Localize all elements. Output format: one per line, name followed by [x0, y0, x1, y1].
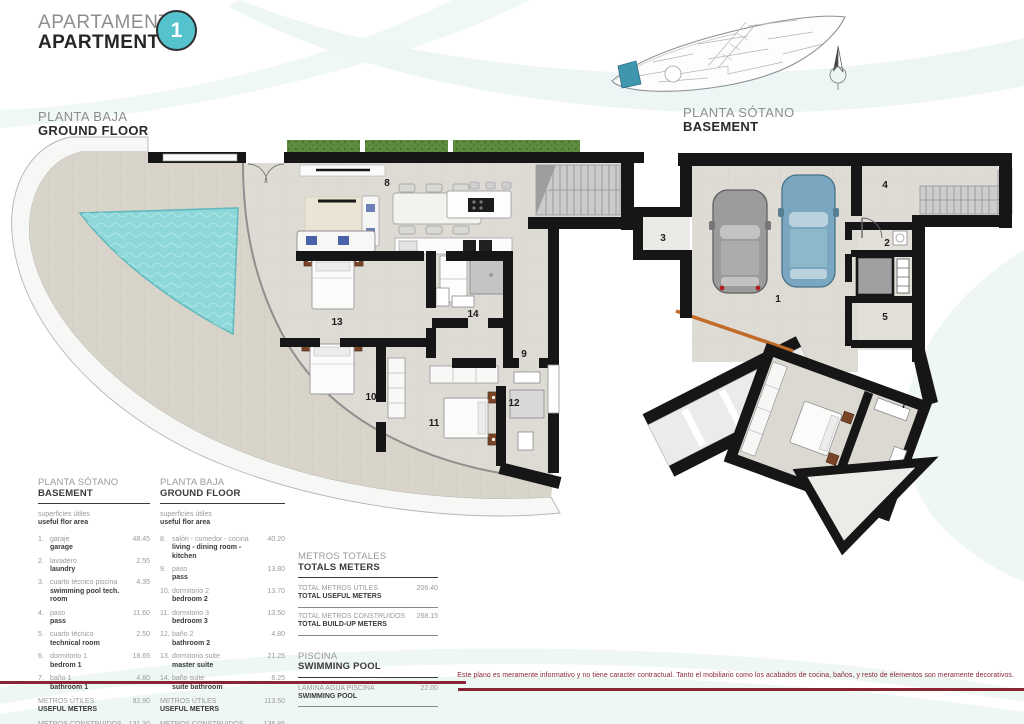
washbasin: [514, 372, 540, 383]
legend-totals: METROS ÚTILES USEFUL METERS 113.50 METRO…: [160, 698, 285, 724]
pool-row: LÁMINA AGUA PISCINA SWIMMING POOL 22.00: [298, 685, 438, 708]
wardrobe: [430, 366, 498, 383]
legend-item-label: baño 1 bathroom 1: [50, 675, 136, 692]
pool-header: PISCINA SWIMMING POOL: [298, 652, 438, 678]
legend-item-label: baño suite suite bathroom: [172, 675, 271, 692]
room-label: 11: [429, 418, 440, 429]
room-label: 13: [331, 317, 343, 328]
totals-header: METROS TOTALES TOTALS METERS: [298, 552, 438, 578]
legend-total-row: METROS ÚTILES USEFUL METERS 92.90: [38, 698, 150, 715]
legend-item-label: garaje garage: [50, 536, 132, 553]
pool-rows: LÁMINA AGUA PISCINA SWIMMING POOL 22.00: [298, 685, 438, 708]
legend-item-label: salón - comedor - cocina living - dining…: [172, 536, 267, 561]
legend-item-label: lavadero laundry: [50, 558, 136, 575]
room-label: 6: [850, 376, 856, 387]
legend-item-label: cuarto técnico piscina swimming pool tec…: [50, 579, 136, 604]
cooktop: [468, 198, 494, 212]
site-plan-key: [598, 4, 858, 99]
legend-item: 8. salón - comedor - cocina living - din…: [160, 536, 285, 561]
legend-item-number: 13.: [160, 653, 172, 670]
legend-item-label: dormitorio 3 bedroom 3: [172, 610, 267, 627]
room-label: 4: [882, 180, 888, 191]
legend-totals: METROS ÚTILES USEFUL METERS 92.90 METROS…: [38, 698, 150, 724]
legend-item: 9. paso pass 13.80: [160, 566, 285, 583]
basement-plan: 1 2 3 4 5 6 7: [620, 140, 1024, 560]
planter-strip: [287, 140, 580, 152]
ground-floor-title-en: GROUND FLOOR: [38, 124, 148, 138]
legend-item-value: 4.35: [136, 579, 150, 604]
legend-item-number: 4.: [38, 610, 50, 627]
legend-item-label: paso pass: [172, 566, 267, 583]
site-notch: [665, 66, 681, 82]
totals-row: TOTAL METROS ÚTILES TOTAL USEFUL METERS …: [298, 585, 438, 608]
legend-item-value: 13.70: [267, 588, 285, 605]
legend-item: 12. baño 2 bathroom 2 4.80: [160, 631, 285, 648]
legend-total-row: METROS ÚTILES USEFUL METERS 113.50: [160, 698, 285, 715]
legend-item-value: 21.25: [267, 653, 285, 670]
legend-item: 2. lavadero laundry 2.55: [38, 558, 150, 575]
ground-floor-title: PLANTA BAJA GROUND FLOOR: [38, 110, 148, 138]
basement-title-en: BASEMENT: [683, 120, 795, 134]
legend-title-en: GROUND FLOOR: [160, 489, 285, 500]
divider-line-left: [0, 681, 466, 684]
ground-floor-title-es: PLANTA BAJA: [38, 110, 148, 124]
legend-item-number: 6.: [38, 653, 50, 670]
legend-subtitle: superficies útiles useful flor area: [160, 511, 285, 528]
legend-item-number: 10.: [160, 588, 172, 605]
compass-icon: [830, 46, 846, 90]
room-label: 8: [384, 178, 390, 189]
legend-item-list: 8. salón - comedor - cocina living - din…: [160, 536, 285, 692]
legend-item-number: 11.: [160, 610, 172, 627]
legend-title-es: PLANTA SÓTANO: [38, 478, 150, 489]
legend-item: 1. garaje garage 48.45: [38, 536, 150, 553]
room-label: 10: [365, 392, 377, 403]
room-label: 14: [467, 309, 479, 320]
room-label: 12: [508, 398, 520, 409]
room-label: 1: [775, 294, 781, 305]
legend-item-label: paso pass: [50, 610, 133, 627]
legend-item-value: 4.80: [271, 631, 285, 648]
bar-stools: [470, 182, 511, 189]
toilet: [436, 288, 449, 306]
unit-number: 1: [171, 19, 183, 43]
legend-item-value: 2.50: [136, 631, 150, 648]
legend-title-en: BASEMENT: [38, 489, 150, 500]
legend-basement: PLANTA SÓTANO BASEMENT superficies útile…: [38, 478, 150, 724]
toilet: [518, 432, 533, 450]
legend-item-label: dormitorio suite master suite: [172, 653, 267, 670]
legend-item-label: dormitorio 1 bedrom 1: [50, 653, 132, 670]
legend-item-number: 2.: [38, 558, 50, 575]
legend-item-value: 6.25: [271, 675, 285, 692]
legend-item: 13. dormitorio suite master suite 21.25: [160, 653, 285, 670]
car-gray: [709, 190, 771, 293]
legend-item: 7. baño 1 bathroom 1 4.80: [38, 675, 150, 692]
legend-item-number: 7.: [38, 675, 50, 692]
legend-item-value: 2.55: [136, 558, 150, 575]
legend-item: 11. dormitorio 3 bedroom 3 13.50: [160, 610, 285, 627]
room-label: 3: [660, 233, 666, 244]
legend-item-list: 1. garaje garage 48.45 2. lavadero laund…: [38, 536, 150, 692]
legend-ground-header: PLANTA BAJA GROUND FLOOR: [160, 478, 285, 504]
legend-item: 3. cuarto técnico piscina swimming pool …: [38, 579, 150, 604]
legend-ground-floor: PLANTA BAJA GROUND FLOOR superficies úti…: [160, 478, 285, 724]
legend-item-label: cuarto técnico technical room: [50, 631, 136, 648]
legend-item-value: 18.65: [132, 653, 150, 670]
legend-item-number: 8.: [160, 536, 172, 561]
staircase: [536, 165, 620, 215]
room-label: 7: [901, 400, 907, 411]
legend-item-value: 40.20: [267, 536, 285, 561]
legend-item-value: 13.80: [267, 566, 285, 583]
legend-item-value: 4.80: [136, 675, 150, 692]
totals-rows: TOTAL METROS ÚTILES TOTAL USEFUL METERS …: [298, 585, 438, 636]
room-label: 5: [882, 312, 888, 323]
divider-line-right: [458, 688, 1024, 691]
legend-item-value: 13.50: [267, 610, 285, 627]
washing-machine: [893, 231, 907, 245]
room-label: 9: [521, 349, 527, 360]
legend-item-number: 12.: [160, 631, 172, 648]
room-label: 2: [884, 238, 890, 249]
legend-item: 5. cuarto técnico technical room 2.50: [38, 631, 150, 648]
legend-item: 10. dormitorio 2 bedroom 2 13.70: [160, 588, 285, 605]
suite-patio: [800, 462, 927, 548]
window: [163, 154, 237, 161]
disclaimer-text: Este plano es meramente informativo y no…: [454, 672, 1014, 679]
basement-title-es: PLANTA SÓTANO: [683, 106, 795, 120]
totals-row: TOTAL METROS CONSTRUIDOS TOTAL BUILD-UP …: [298, 613, 438, 636]
washbasin: [452, 296, 474, 307]
sink: [399, 241, 417, 251]
legend-item-number: 3.: [38, 579, 50, 604]
unit-number-badge: 1: [156, 10, 197, 51]
legend-item-value: 11.60: [133, 610, 150, 627]
legend-item-number: 5.: [38, 631, 50, 648]
legend-subtitle: superficies útiles useful flor area: [38, 511, 150, 528]
legend-title-es: PLANTA BAJA: [160, 478, 285, 489]
basement-title: PLANTA SÓTANO BASEMENT: [683, 106, 795, 134]
legend-item-value: 48.45: [132, 536, 150, 553]
legend-item-number: 9.: [160, 566, 172, 583]
site-outline: [612, 16, 845, 91]
legend-item-number: 14.: [160, 675, 172, 692]
window: [548, 365, 559, 413]
totals-column: METROS TOTALES TOTALS METERS TOTAL METRO…: [298, 552, 438, 712]
ground-floor-plan: 8 9 10 11 12 13 14: [0, 128, 660, 530]
legend-item: 4. paso pass 11.60: [38, 610, 150, 627]
legend-item-label: baño 2 bathroom 2: [172, 631, 271, 648]
legend-item: 6. dormitorio 1 bedrom 1 18.65: [38, 653, 150, 670]
plan-sheet: APARTAMENTO APARTMENT 1: [0, 0, 1024, 724]
legend-item-number: 1.: [38, 536, 50, 553]
elevator: [857, 257, 909, 295]
legend-item-label: dormitorio 2 bedroom 2: [172, 588, 267, 605]
legend-basement-header: PLANTA SÓTANO BASEMENT: [38, 478, 150, 504]
bedroom-13-furniture: [304, 255, 363, 309]
legend-item: 14. baño suite suite bathroom 6.25: [160, 675, 285, 692]
car-blue: [778, 175, 839, 287]
